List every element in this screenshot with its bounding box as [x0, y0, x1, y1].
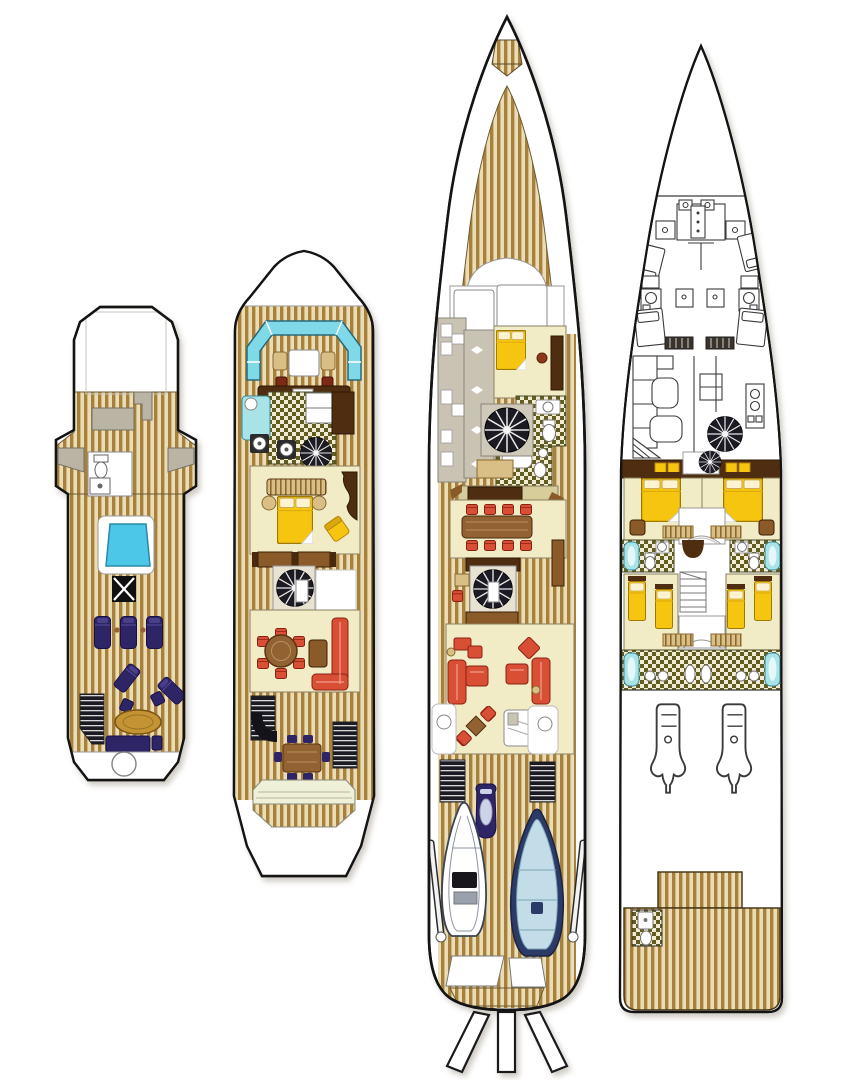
sideboard	[309, 640, 327, 667]
deck-lower	[620, 46, 782, 1012]
toilet	[701, 665, 711, 683]
aft-chair	[287, 735, 297, 743]
cocktail-table	[115, 710, 161, 734]
stern-hatch	[112, 752, 136, 776]
toilet	[749, 557, 759, 570]
sink	[736, 671, 746, 681]
sink	[749, 671, 759, 681]
nightstand	[262, 496, 276, 510]
toilet	[534, 463, 546, 478]
guest-bathroom	[622, 540, 674, 572]
armchair	[506, 664, 528, 684]
cabinet-band	[252, 552, 336, 567]
bridge-deck-interior	[228, 236, 380, 884]
jacuzzi	[98, 516, 154, 574]
side-table-round	[437, 715, 451, 729]
sink	[539, 449, 548, 458]
round-dining-table	[265, 635, 297, 667]
partition	[466, 612, 518, 624]
desk	[551, 336, 563, 390]
spiral-staircase	[485, 408, 529, 452]
dining-chair	[521, 541, 532, 551]
sink	[645, 671, 655, 681]
aft-chair	[303, 735, 313, 743]
ottoman	[468, 646, 482, 658]
crew-locker	[656, 221, 675, 239]
dining-chair	[276, 669, 287, 679]
captain-cabin	[494, 326, 566, 398]
helm-console	[92, 408, 134, 430]
sink	[245, 398, 257, 410]
sun-lounger	[121, 617, 137, 649]
platform-step	[658, 872, 742, 908]
stool	[759, 520, 774, 535]
toilet	[685, 665, 695, 683]
salon-staircase	[470, 566, 516, 614]
armchair	[466, 666, 488, 686]
stool	[630, 520, 645, 535]
cabinet	[477, 460, 513, 478]
stool	[537, 353, 547, 363]
stern-hatch	[509, 958, 546, 987]
berth-mat	[706, 337, 734, 349]
side-table	[532, 686, 540, 694]
deck-chair	[273, 352, 287, 370]
spiral-staircase	[300, 437, 331, 468]
yacht-deck-plans	[0, 0, 844, 1080]
deck-bridge	[228, 236, 380, 884]
aft-stairway-port	[440, 760, 465, 802]
settee-table	[289, 350, 319, 376]
day-head	[632, 910, 662, 946]
bench-seat	[106, 736, 150, 752]
central-staircase	[273, 566, 356, 612]
guest-single-bed	[727, 590, 745, 629]
spiral-staircase	[708, 417, 743, 452]
toilet-tank	[94, 455, 108, 462]
sink	[658, 671, 668, 681]
foot-bench	[663, 526, 693, 538]
sky-lounge	[250, 466, 360, 554]
crew-bed	[736, 308, 768, 347]
mid-stairs	[680, 572, 706, 612]
sun-lounger	[95, 617, 111, 649]
toilet	[641, 931, 652, 945]
dining-lounge	[250, 610, 360, 692]
headboard	[641, 472, 681, 479]
tender-console	[454, 892, 477, 904]
aft-chair	[322, 752, 330, 762]
chair	[452, 591, 462, 602]
stern-hatch	[446, 956, 504, 986]
sun-lounger	[147, 617, 163, 649]
swim-platform	[253, 780, 355, 827]
mess-table	[650, 416, 682, 442]
passerelle-plank	[498, 1012, 515, 1072]
jacuzzi-pool	[106, 524, 150, 566]
mess-table	[652, 378, 678, 408]
guest-bathrooms-aft	[622, 650, 782, 690]
dining-chair	[503, 541, 514, 551]
sink	[738, 543, 747, 552]
aft-table	[283, 744, 321, 772]
aft-stairway-starboard	[530, 762, 555, 802]
nightstand	[312, 496, 326, 510]
aft-chair	[274, 752, 282, 762]
skylight-hatch	[112, 576, 136, 602]
galley	[438, 318, 494, 482]
guest-double-bed	[641, 478, 681, 522]
dining-chair	[467, 505, 478, 515]
sink	[658, 543, 667, 552]
aft-stairway-starboard	[333, 722, 357, 768]
dining-table	[462, 516, 532, 538]
dining-chair	[294, 659, 305, 669]
toilet	[543, 425, 556, 442]
dining-chair	[521, 505, 532, 515]
landing	[316, 570, 356, 610]
lounge-sofa	[267, 479, 326, 495]
dining-chair	[485, 505, 496, 515]
wc-compartment	[88, 452, 132, 496]
foot-bench	[711, 526, 741, 538]
deck-sun	[56, 307, 196, 780]
crew-bathroom	[641, 289, 661, 311]
crew-wc	[707, 289, 724, 307]
dining-chair	[485, 541, 496, 551]
berth-mat	[665, 337, 693, 349]
passerelle-plank	[447, 1012, 489, 1072]
toilet	[645, 557, 655, 570]
double-bed	[277, 497, 313, 544]
guest-bathroom	[730, 540, 782, 572]
dining-chair	[503, 505, 514, 515]
spiral-staircase	[699, 451, 721, 473]
guest-single-bed	[628, 582, 646, 621]
guest-single-bed	[754, 582, 772, 621]
wall-segment	[552, 540, 564, 586]
main-staircase	[481, 404, 533, 456]
passerelle	[447, 1012, 567, 1072]
foot-bench	[711, 634, 741, 646]
main-deck-interior	[424, 12, 590, 1008]
deck-plan-canvas	[0, 0, 844, 1080]
crew-dresser	[642, 276, 659, 288]
drink-table	[114, 627, 119, 632]
tender-windshield	[452, 872, 477, 888]
deck-main	[424, 12, 590, 1072]
guest-double-bed	[723, 478, 763, 522]
toilet	[95, 462, 107, 478]
cabinet	[455, 574, 469, 586]
dining-chair	[467, 541, 478, 551]
drink-table	[140, 627, 145, 632]
galley-cabinet	[332, 392, 354, 434]
dining-chair	[258, 659, 269, 669]
side-table	[447, 648, 455, 656]
passerelle-plank	[525, 1012, 567, 1072]
crew-wc	[676, 289, 693, 307]
foot-bench	[663, 634, 693, 646]
double-bed	[496, 330, 526, 370]
headboard	[723, 472, 763, 479]
guest-single-bed	[655, 590, 673, 629]
sink	[543, 402, 553, 412]
rib-console	[531, 902, 543, 914]
jet-ski	[476, 784, 496, 838]
deck-chair	[321, 352, 335, 370]
crew-bed	[634, 308, 666, 347]
credenza	[468, 487, 522, 500]
side-table-round	[538, 717, 552, 731]
crew-dresser	[741, 276, 758, 288]
bench-seat-end	[152, 736, 162, 750]
